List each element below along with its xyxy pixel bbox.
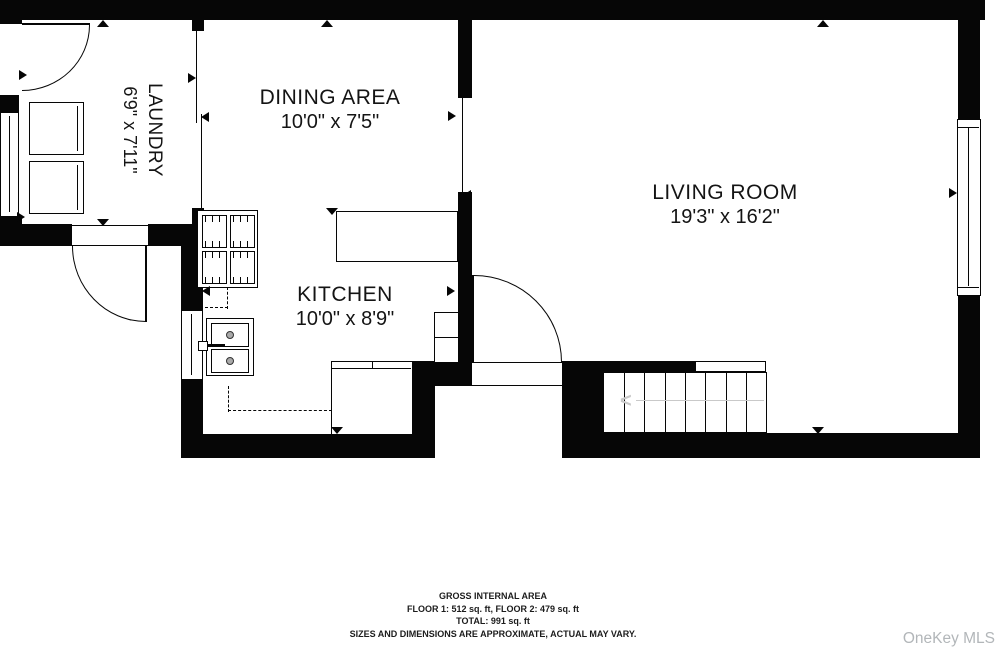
dryer-door-line: [77, 165, 78, 210]
wall-kitchen-corner: [412, 361, 435, 436]
dining-name: DINING AREA: [230, 86, 430, 110]
opening-jamb-line: [462, 98, 463, 192]
dining-dims: 10'0" x 7'5": [230, 110, 430, 134]
dimension-tick: [97, 219, 109, 226]
counter-dashed-line: [228, 386, 229, 412]
dimension-tick: [448, 111, 456, 121]
stair-tread: [726, 373, 727, 432]
wall-top: [0, 0, 985, 20]
kitchen-name: KITCHEN: [245, 283, 445, 307]
dimension-tick: [17, 212, 25, 222]
stair-tread: [644, 373, 645, 432]
faucet-bar: [208, 344, 225, 347]
dimension-tick: [321, 20, 333, 27]
laundry-dims: 6'9" x 7'11": [118, 74, 142, 186]
dimension-tick: [447, 286, 455, 296]
partition-line: [196, 28, 197, 123]
dimension-tick: [201, 112, 209, 122]
dimension-tick: [19, 70, 27, 80]
dimension-tick: [949, 188, 957, 198]
stair-tread: [746, 373, 747, 432]
wall-right-upper: [958, 18, 980, 121]
dimension-tick: [331, 427, 343, 434]
living-dims: 19'3" x 16'2": [625, 205, 825, 229]
stair-landing: [695, 361, 766, 372]
living-name: LIVING ROOM: [625, 181, 825, 205]
sink-drain: [226, 331, 234, 339]
dimension-tick: [202, 286, 210, 296]
window-living: [957, 119, 981, 296]
stair-tread: [685, 373, 686, 432]
room-label-dining: DINING AREA 10'0" x 7'5": [230, 86, 430, 134]
wall-dining-living-upper: [458, 18, 472, 98]
dimension-tick: [188, 73, 196, 83]
counter-dashed-line: [228, 410, 332, 411]
window-center-line: [191, 314, 192, 375]
window-laundry: [0, 112, 19, 217]
faucet-handle: [198, 341, 208, 351]
stair-direction-arrow: <: [620, 391, 632, 411]
wall-above-stairs: [603, 361, 695, 372]
dimension-tick: [812, 427, 824, 434]
stove-burner: [230, 251, 255, 284]
washer: [29, 102, 84, 155]
stove-burner: [230, 215, 255, 248]
stove-burner: [202, 215, 227, 248]
partition-stub-top: [192, 20, 204, 31]
room-label-laundry: LAUNDRY 6'9" x 7'11": [118, 74, 166, 186]
stair-tread: [705, 373, 706, 432]
area-summary: GROSS INTERNAL AREA FLOOR 1: 512 sq. ft,…: [0, 590, 986, 641]
total-area-label: TOTAL: 991 sq. ft: [0, 615, 986, 628]
gross-internal-area-label: GROSS INTERNAL AREA: [0, 590, 986, 603]
shelf: [434, 337, 459, 363]
side-door-arc: [72, 246, 146, 322]
side-door-threshold: [72, 225, 148, 246]
window-frame-line: [958, 287, 979, 288]
laundry-name: LAUNDRY: [142, 74, 166, 186]
floor-plan: < LAUNDRY 6'9" x: [0, 0, 999, 654]
dimension-tick: [326, 208, 338, 215]
wall-stair-block: [562, 361, 603, 458]
stair-direction-line: [636, 400, 764, 401]
wall-laundry-tl-corner: [0, 0, 22, 24]
dryer: [29, 161, 84, 214]
laundry-exterior-door-arc: [22, 25, 90, 91]
room-label-living: LIVING ROOM 19'3" x 16'2": [625, 181, 825, 229]
floor-areas-label: FLOOR 1: 512 sq. ft, FLOOR 2: 479 sq. ft: [0, 603, 986, 616]
wall-kitchen-left-lower: [181, 379, 203, 458]
watermark-onekey-mls: OneKey MLS: [903, 630, 995, 648]
entry-door-threshold: [472, 362, 562, 386]
window-center-line: [9, 116, 10, 212]
stair-tread: [665, 373, 666, 432]
kitchen-dims: 10'0" x 8'9": [245, 307, 445, 331]
entry-door-arc: [474, 275, 562, 362]
wall-laundry-bottom-left: [0, 224, 72, 246]
sink-drain: [226, 357, 234, 365]
partition-line: [201, 114, 202, 211]
counter-dashed-line: [205, 307, 228, 308]
refrigerator: [331, 361, 413, 435]
refrigerator-door-divider: [372, 362, 373, 369]
dimension-tick: [817, 20, 829, 27]
wall-bottom-kitchen: [181, 434, 435, 458]
dining-table: [336, 211, 458, 262]
washer-door-line: [77, 106, 78, 151]
wall-dining-living-lower: [458, 192, 472, 370]
stove-burner: [202, 251, 227, 284]
disclaimer-label: SIZES AND DIMENSIONS ARE APPROXIMATE, AC…: [0, 628, 986, 641]
window-center-line: [968, 128, 969, 286]
counter-dashed-line: [227, 287, 228, 309]
wall-laundry-left-mid: [0, 95, 19, 113]
dimension-tick: [97, 20, 109, 27]
room-label-kitchen: KITCHEN 10'0" x 8'9": [245, 283, 445, 331]
dimension-tick: [463, 190, 471, 200]
wall-bottom-living: [603, 433, 980, 458]
